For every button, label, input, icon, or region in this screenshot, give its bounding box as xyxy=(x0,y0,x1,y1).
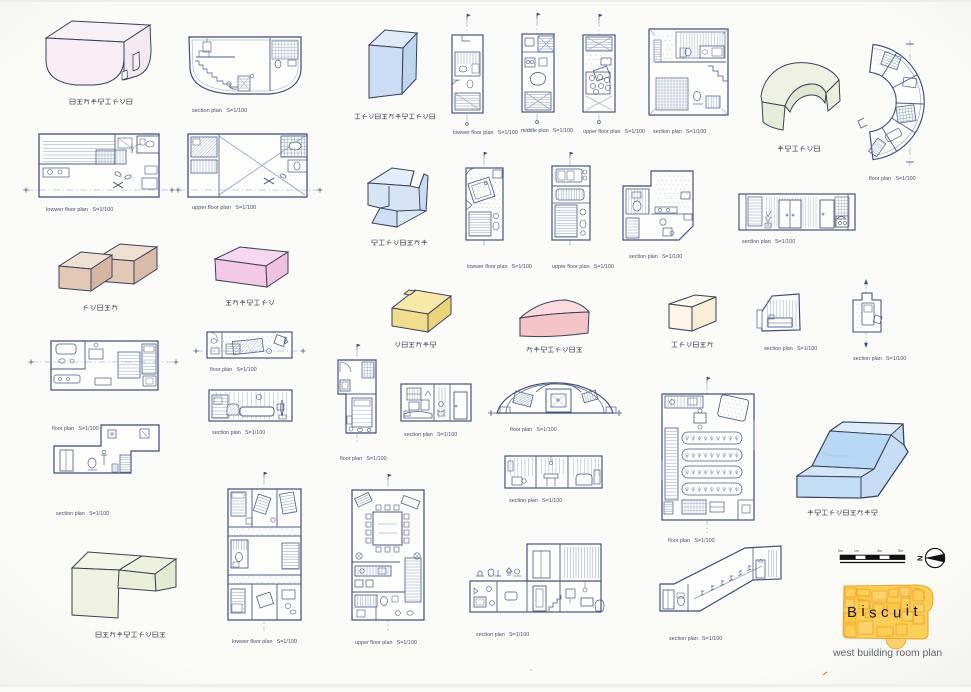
svg-text:section plan S=1/100: section plan S=1/100 xyxy=(764,346,817,352)
svg-text:section plan S=1/100: section plan S=1/100 xyxy=(192,108,247,114)
svg-text:section plan S=1/100: section plan S=1/100 xyxy=(629,254,682,260)
svg-text:section plan S=1/100: section plan S=1/100 xyxy=(212,430,265,436)
svg-text:0m: 0m xyxy=(838,549,843,553)
svg-text:section plan S=1/100: section plan S=1/100 xyxy=(669,636,722,642)
svg-text:upper floor plan S=1/100: upper floor plan S=1/100 xyxy=(583,129,645,135)
svg-text:section plan S=1/100: section plan S=1/100 xyxy=(509,498,562,504)
svg-text:west building room plan: west building room plan xyxy=(832,648,942,659)
svg-text:section plan S=1/100: section plan S=1/100 xyxy=(853,356,906,362)
svg-text:N: N xyxy=(916,556,925,561)
svg-text:lowwer floor plan S=1/100: lowwer floor plan S=1/100 xyxy=(232,639,297,645)
svg-text:upper floor plan S=1/100: upper floor plan S=1/100 xyxy=(355,640,417,646)
svg-text:floor plan S=1/100: floor plan S=1/100 xyxy=(210,367,257,373)
svg-text:lowwer floor plan S=1/100: lowwer floor plan S=1/100 xyxy=(46,207,113,213)
svg-text:section plan S=1/100: section plan S=1/100 xyxy=(653,129,706,135)
svg-text:floor plan S=1/100: floor plan S=1/100 xyxy=(668,538,715,544)
svg-text:upper floor plan S=1/100: upper floor plan S=1/100 xyxy=(192,205,256,211)
svg-text:lowwer floor plan S=1/100: lowwer floor plan S=1/100 xyxy=(467,264,532,270)
svg-text:floor plan S=1/100: floor plan S=1/100 xyxy=(52,426,99,432)
svg-text:3m: 3m xyxy=(877,549,882,553)
svg-text:5m: 5m xyxy=(898,549,903,553)
svg-text:upper floor plan S=1/100: upper floor plan S=1/100 xyxy=(552,264,614,270)
svg-text:section plan S=1/100: section plan S=1/100 xyxy=(742,239,795,245)
svg-text:section plan S=1/100: section plan S=1/100 xyxy=(476,632,529,638)
svg-text:Biscuit: Biscuit xyxy=(847,603,922,622)
svg-text:floor plan S=1/100: floor plan S=1/100 xyxy=(340,456,387,462)
svg-text:1m: 1m xyxy=(854,549,859,553)
svg-text:section plan S=1/100: section plan S=1/100 xyxy=(56,511,109,517)
svg-text:floor plan S=1/100: floor plan S=1/100 xyxy=(869,176,916,182)
svg-text:middle plan S=1/100: middle plan S=1/100 xyxy=(521,128,573,134)
svg-text:section plan S=1/100: section plan S=1/100 xyxy=(404,432,457,438)
svg-text:floor plan S=1/100: floor plan S=1/100 xyxy=(510,427,557,433)
svg-text:lowwer floor plan S=1/100: lowwer floor plan S=1/100 xyxy=(453,130,518,136)
